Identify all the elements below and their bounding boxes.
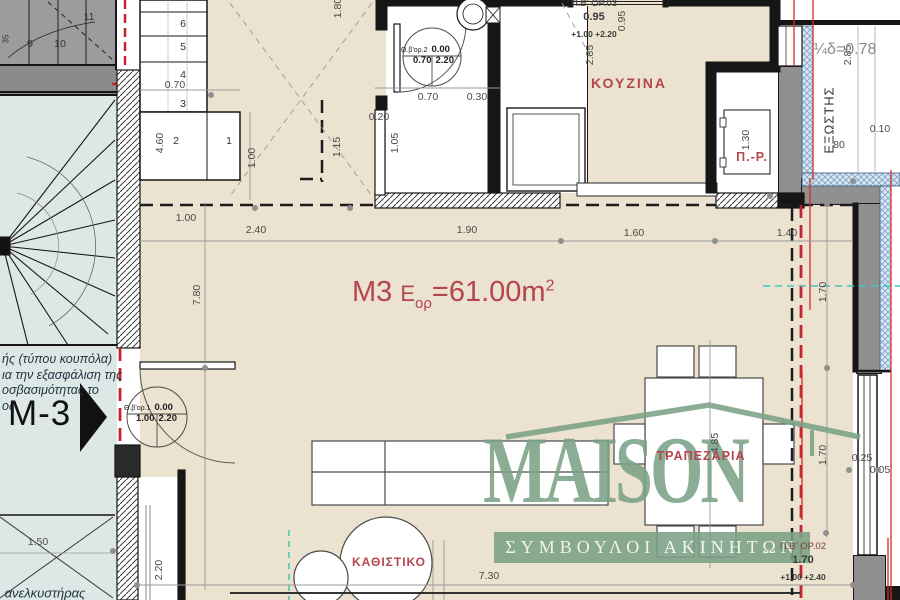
dimension-node	[824, 365, 830, 371]
dimension-node	[208, 92, 214, 98]
window-tag-or03: Π.Β' ΟΡ.03 0.95 +1.00 +2.20	[546, 0, 642, 39]
door-tag-2: Θ.β'ορ.20.00 0.702.20	[401, 44, 454, 66]
dimension-node	[202, 365, 208, 371]
dimension-node	[252, 205, 258, 211]
window-tag-or02: Π.Β' ΟΡ.02 1.70 +1.00 +2.40	[755, 541, 851, 582]
dimension-node	[558, 238, 564, 244]
dimension-node	[767, 193, 773, 199]
dimension-node	[110, 548, 116, 554]
dimension-node	[824, 201, 830, 207]
dimension-node	[134, 582, 140, 588]
dimension-node	[850, 582, 856, 588]
section-marker-label: Μ-3	[8, 394, 71, 434]
dimension-node	[347, 205, 353, 211]
unit-area-label: M3 Εορ=61.00m2	[352, 276, 555, 312]
door-tag-1: Θ.β'ορ.10.00 1.002.20	[124, 402, 177, 424]
annotation-layer: M3 Εορ=61.00m2 ής (τύπου κουπόλα) ια την…	[0, 0, 900, 600]
dimension-node	[850, 178, 856, 184]
dimension-node	[712, 238, 718, 244]
floor-plan: MAISON ΣΥΜΒΟΥΛΟΙ ΑΚΙΝΗΤΩΝ M3 Εορ=61.00m2…	[0, 0, 900, 600]
dimension-node	[875, 467, 881, 473]
dimension-node	[846, 467, 852, 473]
dimension-node	[823, 530, 829, 536]
